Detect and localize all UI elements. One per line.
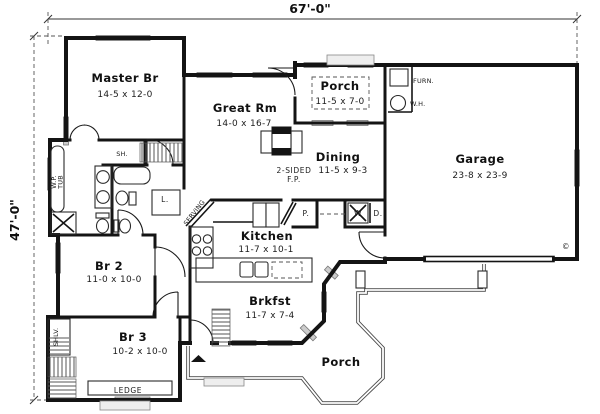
br3-closet-rod	[48, 357, 76, 377]
room-label-dining: Dining	[316, 150, 360, 164]
closet-shelf-label: SH.	[116, 150, 128, 158]
pantry-label: P.	[303, 209, 310, 218]
water-heater-label: W.H.	[410, 100, 425, 108]
top-porch-step	[327, 55, 374, 65]
fireplace-label-1: 2-SIDED	[277, 166, 312, 175]
height-dimension-label: 47'-0"	[7, 199, 22, 241]
room-label-master: Master Br	[91, 71, 158, 85]
room-label-garage: Garage	[455, 152, 504, 166]
sink-basin	[255, 262, 268, 277]
porch-post	[356, 271, 365, 288]
water-heater-circle	[391, 96, 406, 111]
vanity	[95, 166, 112, 208]
room-label-porch-top: Porch	[320, 79, 359, 93]
furnace-box	[390, 69, 408, 86]
master-bath-fixtures	[51, 146, 112, 234]
room-label-porch-bottom: Porch	[321, 355, 360, 369]
master-closet-rod	[140, 143, 182, 162]
width-dimension-label: 67'-0"	[289, 1, 331, 16]
burner	[192, 247, 200, 255]
room-dims-garage: 23-8 x 23-9	[452, 171, 507, 181]
room-dims-porch-top: 11-5 x 7-0	[315, 97, 364, 107]
bedroom-wing-step	[100, 401, 150, 410]
whirlpool-label-2: TUB	[57, 175, 65, 190]
room-dims-brkfst: 11-7 x 7-4	[245, 311, 294, 321]
room-dims-master: 14-5 x 12-0	[97, 90, 152, 100]
fridge	[253, 203, 266, 227]
room-dims-great-rm: 14-0 x 16-7	[216, 119, 271, 129]
sink	[97, 171, 110, 184]
floor-plan-drawing: 67'-0" 47'-0"	[0, 0, 600, 414]
floor-plan-sheet: 67'-0" 47'-0"	[0, 0, 600, 414]
burner	[192, 235, 200, 243]
room-label-br3: Br 3	[119, 330, 147, 344]
fireplace-label-2: F.P.	[287, 175, 301, 184]
sink-counter	[129, 192, 136, 205]
burner	[203, 235, 211, 243]
ledge-label: LEDGE	[114, 386, 142, 395]
room-dims-br3: 10-2 x 10-0	[112, 347, 167, 357]
dishwasher	[272, 262, 302, 278]
room-label-kitchen: Kitchen	[241, 229, 293, 243]
sink	[97, 191, 110, 204]
br3-closet-shelves	[48, 379, 76, 398]
dryer-label: D.	[373, 209, 382, 218]
washer-label: W	[354, 209, 362, 218]
room-dims-br2: 11-0 x 10-0	[86, 275, 141, 285]
shelves-label: SHLV.	[52, 328, 60, 347]
burner	[203, 247, 211, 255]
fireplace	[261, 127, 302, 155]
room-label-brkfst: Brkfst	[249, 294, 291, 308]
toilet-tank	[96, 213, 109, 218]
entry-marker-triangle	[191, 355, 206, 362]
fridge	[266, 203, 279, 227]
copyright-mark: ©	[562, 242, 570, 251]
sink	[116, 191, 128, 205]
room-label-br2: Br 2	[95, 259, 123, 273]
room-label-great-rm: Great Rm	[213, 101, 277, 115]
entry-step	[204, 378, 244, 386]
sink-basin	[240, 262, 253, 277]
room-labels: Master Br 14-5 x 12-0 Great Rm 14-0 x 16…	[86, 71, 507, 369]
toilet	[97, 219, 109, 233]
pantry-door	[281, 202, 296, 225]
room-dims-kitchen: 11-7 x 10-1	[238, 245, 293, 255]
porch-post	[478, 271, 487, 288]
garage-door	[424, 257, 554, 262]
room-dims-dining: 11-5 x 9-3	[318, 166, 367, 176]
hall-bath-fixtures	[114, 167, 150, 233]
linen-label: L.	[161, 195, 169, 204]
entry-closet-shelves	[212, 309, 230, 346]
bathtub	[114, 167, 150, 184]
furnace-label: FURN.	[413, 77, 434, 85]
toilet	[120, 219, 131, 233]
